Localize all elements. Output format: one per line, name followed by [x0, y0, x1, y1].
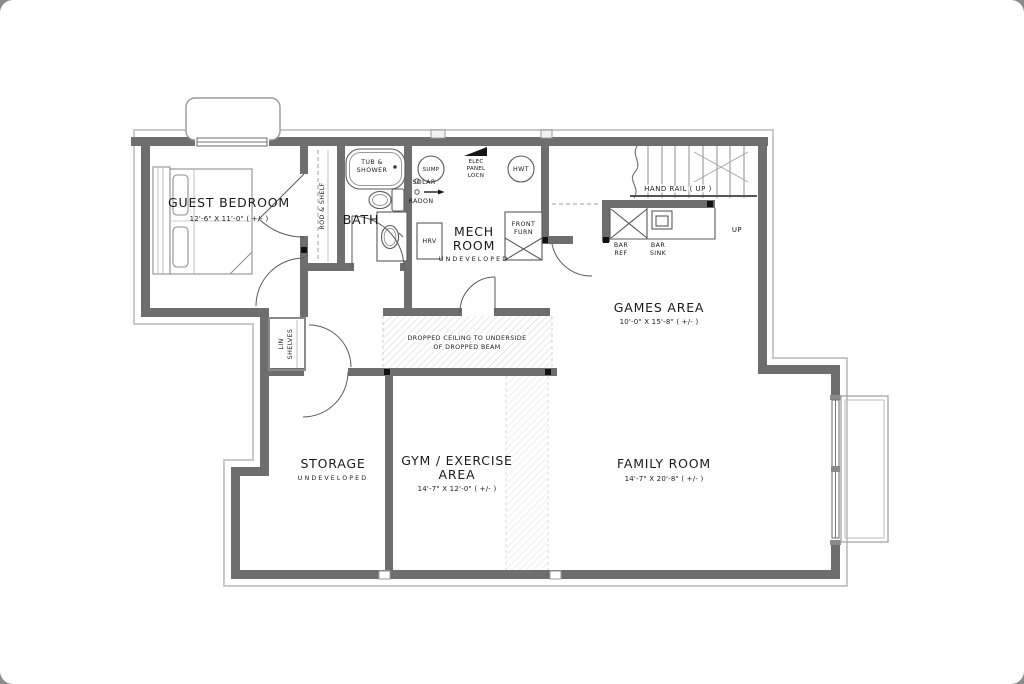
bed-pillow: [173, 227, 188, 267]
window-mullion: [831, 466, 840, 472]
elec-label-3: LOCN: [468, 173, 484, 179]
solar-label: SOLAR: [412, 179, 436, 186]
elec-panel-marker: [464, 147, 487, 156]
bedroom-window-well: [186, 98, 280, 147]
elec-label-1: ELEC: [469, 159, 484, 165]
bath-label: BATH: [343, 212, 379, 227]
gym-label-2: AREA: [439, 467, 476, 482]
window-well: [841, 396, 888, 542]
linen-label-2: SHELVES: [287, 329, 294, 360]
games-area-dims: 10'-0" X 15'-8" ( +/- ): [620, 318, 699, 326]
stair-break-line: [632, 146, 637, 198]
games-area-door: [552, 244, 592, 276]
mech-room-door: [460, 277, 495, 312]
games-area-label: GAMES AREA: [614, 300, 705, 315]
bar-ref-label-1: BAR: [614, 242, 628, 249]
guest-bedroom-dims: 12'-6" X 11'-0" ( +/- ): [190, 215, 269, 223]
bar-ref-label-2: REF: [614, 250, 627, 257]
staircase: [552, 146, 757, 204]
bar-sink-label-2: SINK: [650, 250, 667, 257]
storage-status: UNDEVELOPED: [298, 475, 368, 482]
family-room-label: FAMILY ROOM: [617, 456, 711, 471]
radon-label: RADON: [409, 198, 434, 205]
guest-bedroom-label: GUEST BEDROOM: [168, 195, 290, 210]
radon-arrow: [438, 190, 445, 195]
tub-label-2: SHOWER: [357, 167, 388, 174]
dropped-ceiling-label-2: OF DROPPED BEAM: [433, 344, 500, 351]
furnace-label-2: FURN: [514, 229, 533, 236]
linen-closet-door: [309, 325, 351, 367]
gym-label-1: GYM / EXERCISE: [401, 453, 513, 468]
rod-shelf-label: ROD & SHELF: [319, 182, 326, 229]
furnace: [505, 212, 542, 260]
linen-label-1: LIN: [278, 338, 285, 349]
bar-ref-cabinet: [611, 209, 647, 238]
bar-sink-label-1: BAR: [651, 242, 665, 249]
hall-door: [256, 258, 304, 306]
hand-rail-label: HAND RAIL ( UP ): [644, 185, 712, 193]
gym-dims: 14'-7" X 12'-0" ( +/- ): [418, 485, 497, 493]
dropped-ceiling-hatch: [383, 316, 552, 570]
up-label: UP: [732, 226, 742, 234]
family-room-window: [830, 395, 888, 545]
shower-head: [393, 165, 396, 168]
bed-headboard: [153, 167, 170, 274]
hrv-label: HRV: [422, 238, 437, 245]
mech-room-label-1: MECH: [454, 224, 494, 239]
mech-room-status: UNDEVELOPED: [439, 256, 509, 263]
furnace-label-1: FRONT: [512, 221, 536, 228]
toilet: [369, 189, 404, 211]
storage-door: [303, 372, 348, 417]
dropped-ceiling-label-1: DROPPED CEILING TO UNDERSIDE: [407, 335, 526, 342]
elec-label-2: PANEL: [467, 166, 486, 172]
tub-label-1: TUB &: [360, 159, 383, 166]
sump-label: SUMP: [423, 167, 440, 173]
hwt-label: HWT: [513, 166, 529, 173]
floor-plan-canvas: GUEST BEDROOM 12'-6" X 11'-0" ( +/- ) RO…: [0, 0, 1024, 684]
family-room-dims: 14'-7" X 20'-8" ( +/- ): [625, 475, 704, 483]
floor-plan-drawing: GUEST BEDROOM 12'-6" X 11'-0" ( +/- ) RO…: [0, 0, 1024, 684]
mech-room-label-2: ROOM: [453, 238, 495, 253]
storage-label: STORAGE: [300, 456, 365, 471]
bar-counter: [610, 208, 715, 239]
